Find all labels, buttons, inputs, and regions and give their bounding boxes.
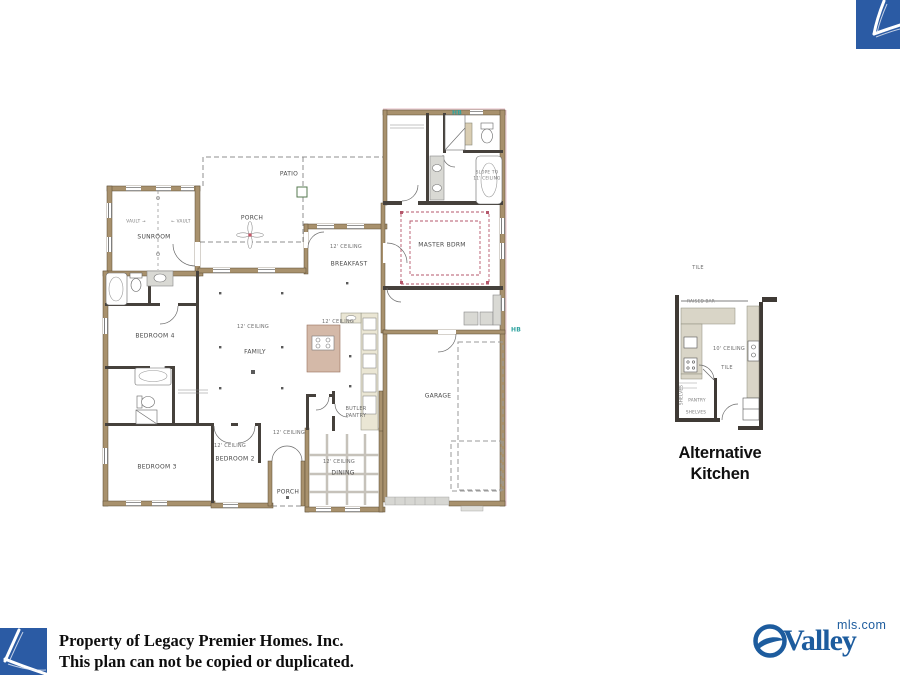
copyright-line-2: This plan can not be copied or duplicate… (59, 651, 354, 672)
master-tray-ceiling (401, 212, 489, 284)
floorplan-svg (0, 0, 900, 675)
quill-icon (856, 0, 900, 49)
alt-kitchen-title: Alternative Kitchen (646, 443, 794, 485)
ceiling-fan-icon (237, 222, 264, 249)
quill-icon (0, 628, 47, 675)
exterior-walls (103, 110, 505, 512)
windows (103, 110, 505, 512)
kitchen-island (307, 325, 340, 372)
legacy-logo-icon (0, 628, 47, 675)
sunroom-vault-line (157, 191, 160, 270)
brand-logo-topright (856, 0, 900, 49)
alt-kitchen-drawing (675, 295, 777, 430)
copyright-notice: Property of Legacy Premier Homes. Inc. T… (59, 630, 354, 672)
alt-kitchen-title-line2: Kitchen (646, 464, 794, 485)
alt-kitchen-title-line1: Alternative (646, 443, 794, 464)
valleymls-domain: mls.com (837, 618, 886, 632)
copyright-line-1: Property of Legacy Premier Homes. Inc. (59, 630, 354, 651)
tray-corner-marks (400, 211, 489, 284)
dining-coffered-ceiling (309, 434, 379, 505)
valleymls-logo: Valley mls.com (748, 615, 900, 670)
garage-dashed-outline (451, 342, 503, 491)
alt-kitchen-counters (681, 301, 759, 398)
listing-image-canvas: PATIOPORCHSUNROOMVAULT →← VAULTHBHBSLOPE… (0, 0, 900, 675)
kitchen-cabinets (341, 313, 378, 430)
patio-column (297, 187, 307, 197)
patio-dashed-outline (200, 157, 383, 506)
porch-pendant (286, 496, 289, 499)
